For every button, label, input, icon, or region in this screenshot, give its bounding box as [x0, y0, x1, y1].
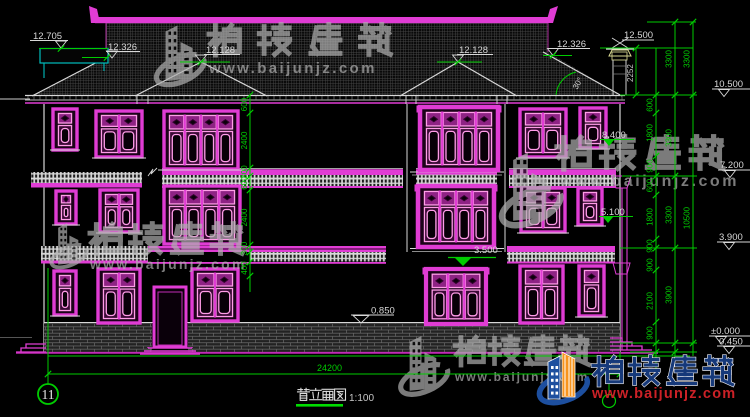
- svg-text:900: 900: [646, 326, 655, 340]
- svg-text:600: 600: [646, 178, 655, 192]
- svg-text:3900: 3900: [665, 286, 674, 304]
- svg-text:www.baijunjz.com: www.baijunjz.com: [89, 256, 247, 272]
- svg-text:900: 900: [646, 239, 655, 253]
- svg-text:3300: 3300: [665, 50, 674, 68]
- svg-text:7.200: 7.200: [720, 160, 744, 171]
- svg-text:www.baijunjz.com: www.baijunjz.com: [208, 60, 377, 77]
- svg-text:10500: 10500: [683, 206, 692, 229]
- svg-text:2400: 2400: [240, 131, 249, 149]
- svg-text:600: 600: [240, 176, 249, 190]
- svg-text:2252: 2252: [626, 64, 635, 82]
- svg-text:900: 900: [646, 258, 655, 272]
- svg-text:3.500: 3.500: [474, 245, 498, 256]
- svg-text:3300: 3300: [683, 50, 692, 68]
- svg-text:400: 400: [240, 261, 249, 275]
- svg-text:3.900: 3.900: [719, 232, 743, 243]
- svg-text:1:100: 1:100: [349, 393, 374, 404]
- svg-text:2400: 2400: [240, 208, 249, 226]
- svg-text:3300: 3300: [665, 129, 674, 147]
- svg-text:24200: 24200: [317, 363, 342, 373]
- svg-text:900: 900: [646, 159, 655, 173]
- svg-text:600: 600: [240, 97, 249, 111]
- svg-text:300: 300: [240, 241, 249, 255]
- svg-text:1800: 1800: [646, 124, 655, 142]
- svg-text:±0.000: ±0.000: [711, 326, 740, 337]
- svg-text:10.500: 10.500: [714, 79, 743, 90]
- svg-text:3300: 3300: [665, 206, 674, 224]
- svg-text:12.500: 12.500: [624, 30, 653, 41]
- svg-text:2100: 2100: [646, 292, 655, 310]
- svg-text:11: 11: [42, 387, 55, 402]
- svg-text:www.baijunjz.com: www.baijunjz.com: [591, 386, 736, 402]
- svg-text:600: 600: [646, 98, 655, 112]
- svg-text:1800: 1800: [646, 208, 655, 226]
